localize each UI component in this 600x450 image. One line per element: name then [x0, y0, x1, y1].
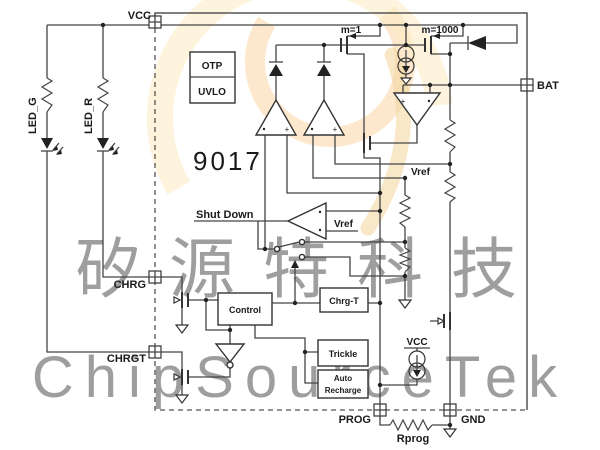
auto-recharge-block: Auto Recharge: [318, 370, 368, 398]
chrgt-pin-label: CHRGT: [107, 353, 146, 365]
led-r-label: LED_R: [83, 98, 95, 134]
bat-divider-r1: [445, 120, 455, 152]
svg-text:+: +: [401, 97, 406, 106]
prog-pin-label: PROG: [339, 414, 371, 426]
charger-block-diagram: 矽源特科技 ChipSourceTek: [0, 0, 600, 450]
control-block: Control: [218, 293, 272, 325]
vref-sd-label: Vref: [334, 219, 354, 230]
otp-uvlo-block: OTP UVLO: [190, 52, 235, 103]
shutdown-label: Shut Down: [196, 209, 254, 221]
auto-recharge-label-1: Auto: [334, 374, 352, 383]
comparator-2: +: [304, 100, 344, 135]
trickle-block: Trickle: [318, 340, 368, 366]
bat-pin-label: BAT: [537, 80, 559, 92]
gnd-mosfet: [438, 312, 450, 330]
part-number: 9017: [193, 146, 263, 176]
watermark-cjk: 矽源特科技: [75, 232, 545, 306]
uvlo-label: UVLO: [198, 87, 226, 98]
prog-pad: [374, 404, 386, 416]
m1000-label: m=1000: [422, 25, 459, 36]
otp-label: OTP: [202, 61, 223, 72]
led-red: [97, 138, 119, 155]
vref-top-label: Vref: [411, 167, 431, 178]
led-green: [41, 138, 63, 155]
vcc-internal-label: VCC: [406, 337, 427, 348]
comparator-diode-2: [317, 62, 331, 76]
schematic-page: 矽源特科技 ChipSourceTek: [0, 0, 600, 450]
bat-pad: [521, 79, 533, 91]
bat-divider-r2: [445, 172, 455, 202]
vref-divider-r1: [400, 195, 410, 227]
trickle-label: Trickle: [329, 349, 358, 359]
control-label: Control: [229, 305, 261, 315]
rprog-resistor: [390, 420, 432, 430]
led-g-resistor: [42, 78, 52, 112]
chrg-t-block: Chrg-T: [320, 288, 368, 312]
rprog-label: Rprog: [397, 433, 429, 445]
gnd-pad: [444, 404, 456, 416]
bat-blocking-diode: [468, 36, 486, 50]
comparator-diode-1: [269, 62, 283, 76]
led-r-resistor: [98, 78, 108, 112]
svg-text:+: +: [285, 125, 290, 134]
chrg-pad: [149, 271, 161, 283]
m1-label: m=1: [341, 25, 362, 36]
chrgt-pad: [149, 346, 161, 358]
svg-text:+: +: [333, 125, 338, 134]
chrg-pin-label: CHRG: [114, 279, 146, 291]
auto-recharge-label-2: Recharge: [325, 386, 362, 395]
led-g-label: LED_G: [27, 97, 39, 134]
chrg-t-label: Chrg-T: [329, 296, 359, 306]
gnd-pin-label: GND: [461, 414, 486, 426]
vcc-pin-label: VCC: [128, 10, 151, 22]
